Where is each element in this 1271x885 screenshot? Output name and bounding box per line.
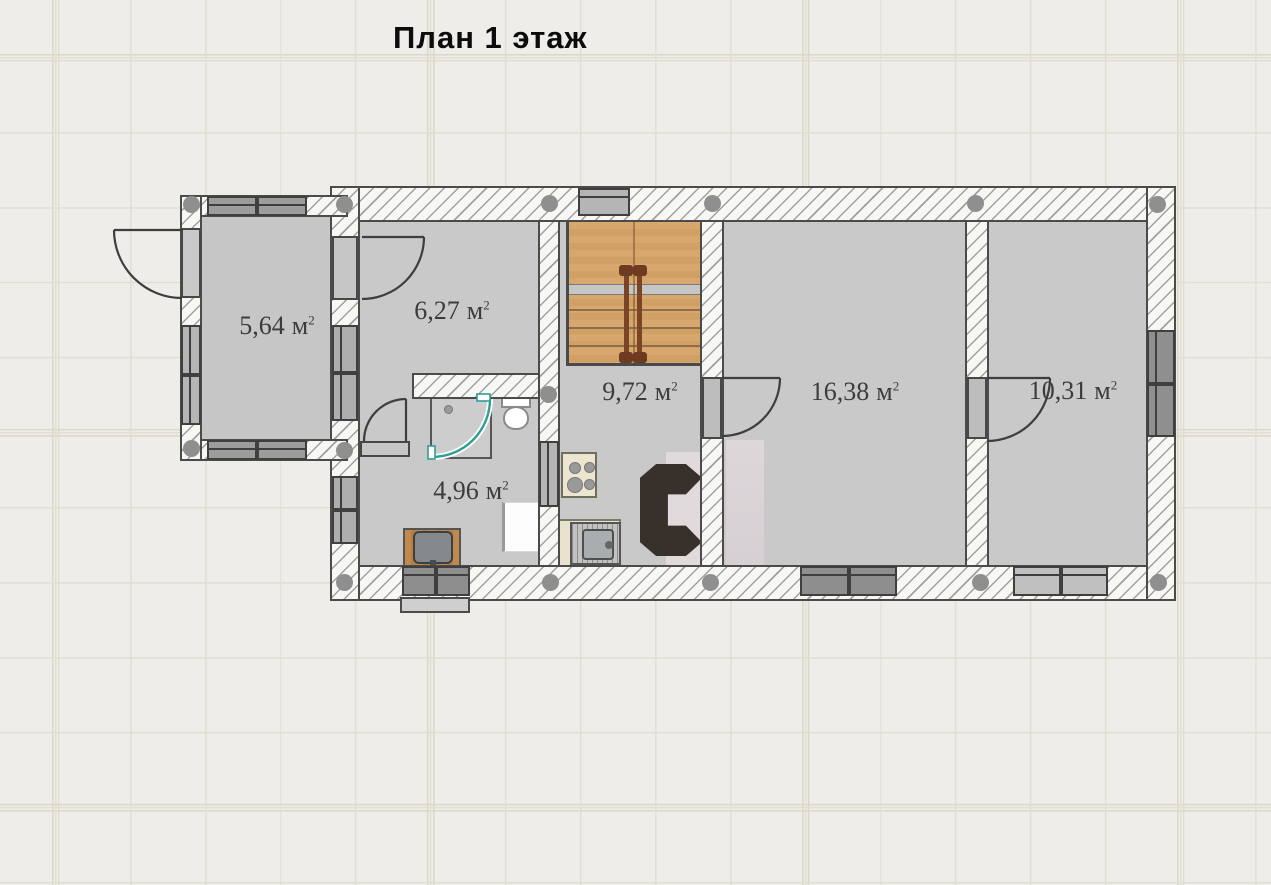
column bbox=[336, 196, 353, 213]
column bbox=[540, 386, 557, 403]
stair-post bbox=[633, 265, 647, 276]
area-label-vestibule: 5,64м2 bbox=[239, 311, 314, 341]
stair-rail-left bbox=[624, 272, 629, 362]
door-opening-kitchen-living[interactable] bbox=[702, 377, 722, 439]
staircase[interactable] bbox=[566, 219, 703, 366]
wall-partition-bathroom-top[interactable] bbox=[412, 373, 540, 399]
door-opening-bathroom[interactable] bbox=[360, 441, 410, 457]
column bbox=[1150, 574, 1167, 591]
column bbox=[336, 442, 353, 459]
door-opening-living-bedroom[interactable] bbox=[967, 377, 987, 439]
window-vestibule-inner[interactable] bbox=[332, 325, 358, 421]
window-stairs-top[interactable] bbox=[578, 188, 630, 216]
stove[interactable] bbox=[561, 452, 597, 498]
washer-cabinet[interactable] bbox=[502, 502, 539, 552]
page-title: План 1 этаж bbox=[393, 20, 588, 56]
window-living-bottom[interactable] bbox=[800, 566, 897, 596]
column bbox=[542, 574, 559, 591]
column bbox=[702, 574, 719, 591]
area-label-bedroom: 10,31м2 bbox=[1029, 376, 1117, 406]
kitchen-faucet bbox=[605, 541, 613, 549]
window-vestibule-top[interactable] bbox=[207, 196, 307, 216]
area-label-room627: 6,27м2 bbox=[414, 296, 489, 326]
door-opening-vestibule-room[interactable] bbox=[332, 236, 358, 300]
window-bedroom-bottom[interactable] bbox=[1013, 566, 1108, 596]
column bbox=[972, 574, 989, 591]
stair-center-line bbox=[633, 222, 635, 363]
stair-post bbox=[619, 265, 633, 276]
stair-post bbox=[633, 352, 647, 363]
window-vestibule-bottom[interactable] bbox=[207, 440, 307, 460]
column bbox=[704, 195, 721, 212]
burner bbox=[584, 479, 595, 490]
column bbox=[183, 196, 200, 213]
window-bedroom-right[interactable] bbox=[1147, 330, 1175, 437]
burner bbox=[567, 477, 583, 493]
column bbox=[1149, 196, 1166, 213]
shower-head bbox=[444, 405, 453, 414]
fireplace-marble-living[interactable] bbox=[726, 440, 764, 565]
area-label-living: 16,38м2 bbox=[811, 377, 899, 407]
column bbox=[967, 195, 984, 212]
window-bath-kitchen[interactable] bbox=[539, 441, 559, 507]
door-arc-entrance bbox=[114, 230, 182, 298]
area-label-bathroom: 4,96м2 bbox=[433, 476, 508, 506]
area-label-kitchen: 9,72м2 bbox=[602, 377, 677, 407]
burner bbox=[569, 462, 581, 474]
floor-plan-canvas[interactable]: План 1 этаж bbox=[0, 0, 1271, 885]
stair-post bbox=[619, 352, 633, 363]
door-opening-entrance[interactable] bbox=[181, 228, 201, 298]
toilet-bowl[interactable] bbox=[503, 406, 529, 430]
window-sill-exterior bbox=[400, 597, 470, 613]
column bbox=[541, 195, 558, 212]
window-bathroom-left[interactable] bbox=[332, 476, 358, 544]
column bbox=[183, 440, 200, 457]
column bbox=[336, 574, 353, 591]
shower-tray[interactable] bbox=[430, 397, 492, 459]
window-bathroom-bottom[interactable] bbox=[402, 566, 470, 596]
stair-rail-right bbox=[637, 272, 642, 362]
wall-exterior-top[interactable] bbox=[330, 186, 1176, 222]
window-vestibule-left[interactable] bbox=[181, 325, 201, 425]
burner bbox=[584, 462, 595, 473]
